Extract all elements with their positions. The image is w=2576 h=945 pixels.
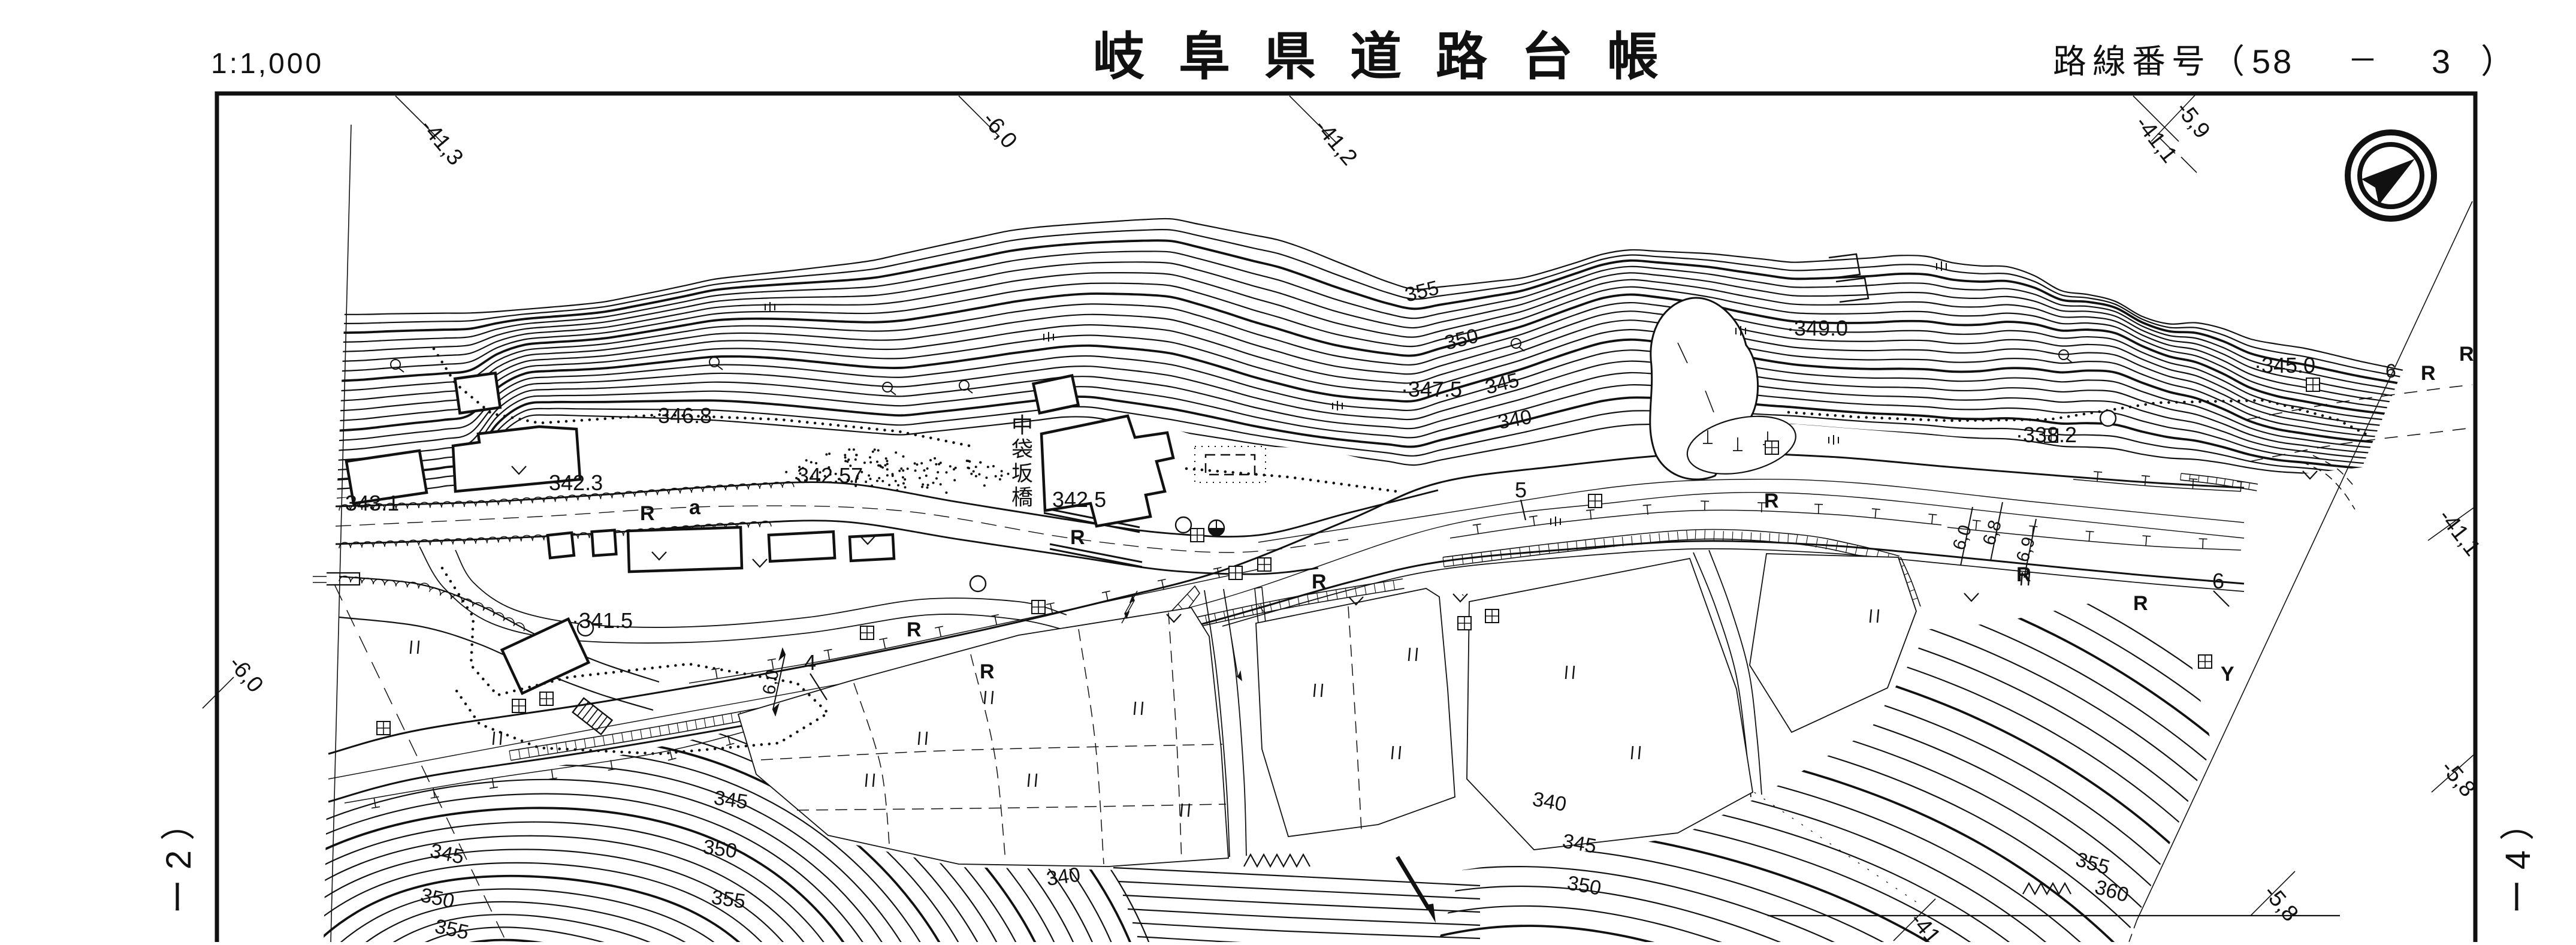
- svg-text:·341.5: ·341.5: [572, 608, 633, 633]
- svg-text:5: 5: [1515, 478, 1527, 502]
- svg-text:R: R: [2016, 563, 2031, 586]
- svg-text:路: 路: [1436, 28, 1488, 86]
- svg-text:台: 台: [1521, 28, 1573, 86]
- svg-text:－: －: [2348, 44, 2378, 77]
- svg-text:342.5: 342.5: [1052, 487, 1106, 512]
- svg-text:R: R: [2133, 592, 2148, 615]
- svg-text:R: R: [640, 502, 655, 525]
- svg-text:343.1: 343.1: [345, 491, 399, 515]
- svg-text:R: R: [907, 618, 922, 641]
- svg-text:県: 県: [1264, 28, 1316, 86]
- svg-text:342.57.: 342.57.: [797, 463, 869, 488]
- svg-text:1:1,000: 1:1,000: [211, 48, 324, 80]
- svg-text:路線番号（: 路線番号（: [2053, 43, 2251, 80]
- svg-text:·338.2: ·338.2: [2016, 422, 2077, 447]
- svg-text:6: 6: [2212, 569, 2224, 593]
- svg-text:Y: Y: [2221, 663, 2234, 686]
- svg-text:4: 4: [804, 650, 816, 675]
- svg-text:ー 2 ）: ー 2 ）: [159, 806, 198, 914]
- svg-text:6: 6: [2385, 360, 2396, 382]
- svg-text:阜: 阜: [1179, 28, 1230, 86]
- svg-text:R: R: [2459, 343, 2474, 366]
- svg-text:342.3: 342.3: [549, 470, 603, 495]
- svg-text:岐: 岐: [1093, 28, 1144, 86]
- svg-text:340: 340: [1045, 863, 1082, 890]
- svg-text:R: R: [980, 660, 995, 683]
- svg-text:58: 58: [2252, 43, 2294, 80]
- svg-text:R: R: [2421, 362, 2436, 385]
- svg-text:R: R: [1070, 526, 1085, 549]
- svg-text:350: 350: [702, 835, 738, 863]
- svg-text:·345.0: ·345.0: [2254, 353, 2315, 378]
- svg-text:）: ）: [2481, 43, 2514, 80]
- svg-text:·346.8: ·346.8: [651, 403, 712, 428]
- svg-text:坂: 坂: [1011, 461, 1033, 485]
- svg-text:3: 3: [2432, 43, 2450, 80]
- svg-text:a: a: [689, 496, 701, 519]
- svg-text:帳: 帳: [1607, 28, 1659, 86]
- svg-text:345: 345: [712, 786, 749, 814]
- svg-text:R: R: [1312, 570, 1327, 593]
- svg-text:袋: 袋: [1011, 437, 1033, 461]
- svg-text:·349.0: ·349.0: [1787, 316, 1848, 340]
- svg-text:道: 道: [1350, 28, 1402, 86]
- svg-text:中: 中: [1011, 413, 1033, 437]
- svg-text:R: R: [1764, 490, 1779, 512]
- svg-text:ー 4 ）: ー 4 ）: [2499, 806, 2538, 914]
- svg-text:·347.5: ·347.5: [1401, 377, 1462, 401]
- svg-text:355: 355: [710, 886, 747, 913]
- svg-text:橋: 橋: [1011, 485, 1033, 509]
